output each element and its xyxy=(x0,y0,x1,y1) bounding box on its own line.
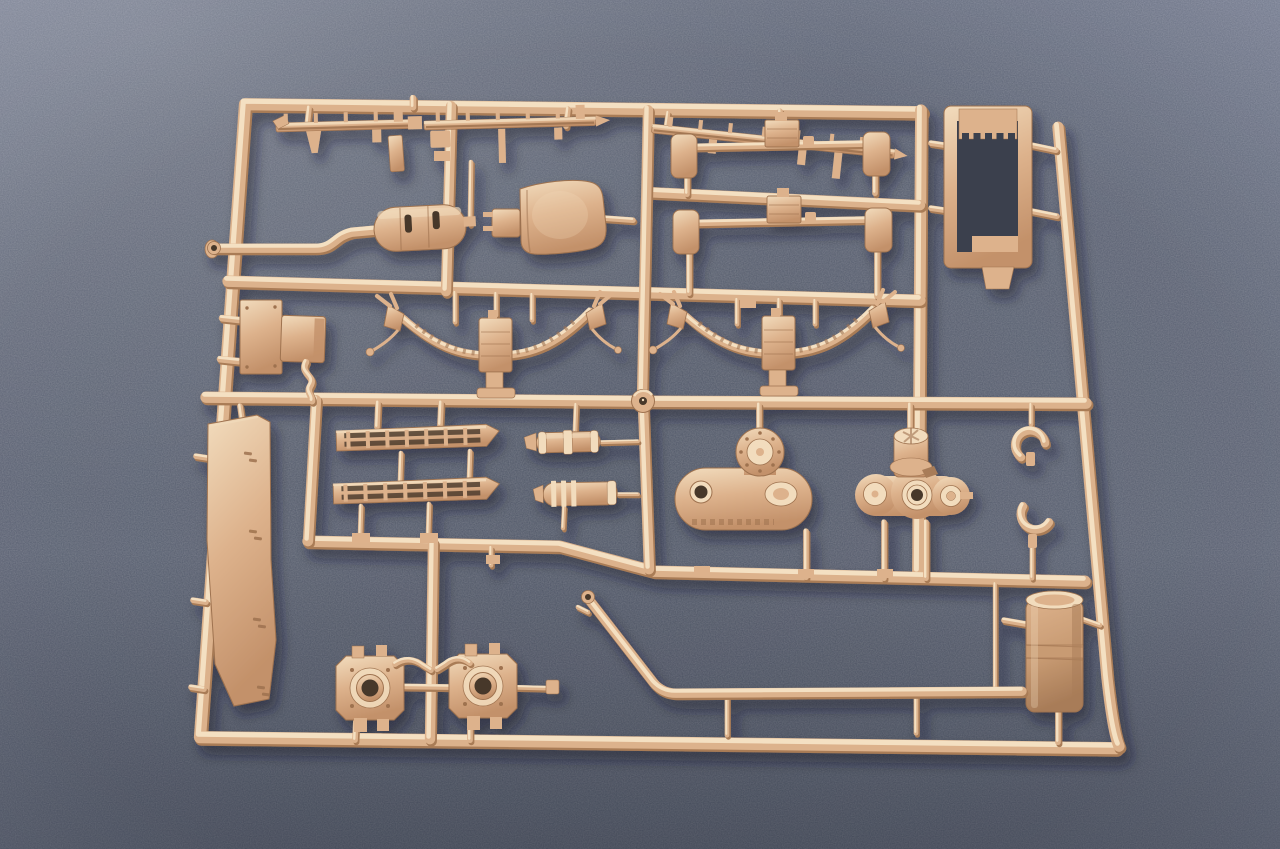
fuel-drum-part xyxy=(1026,591,1083,712)
bracket-frame-part xyxy=(944,106,1032,289)
center-gate-ring xyxy=(632,390,655,413)
small-bracket-tab xyxy=(388,135,404,172)
sprue-photo xyxy=(0,0,1280,849)
side-panel-part xyxy=(207,415,276,706)
photo-stage xyxy=(0,0,1280,849)
